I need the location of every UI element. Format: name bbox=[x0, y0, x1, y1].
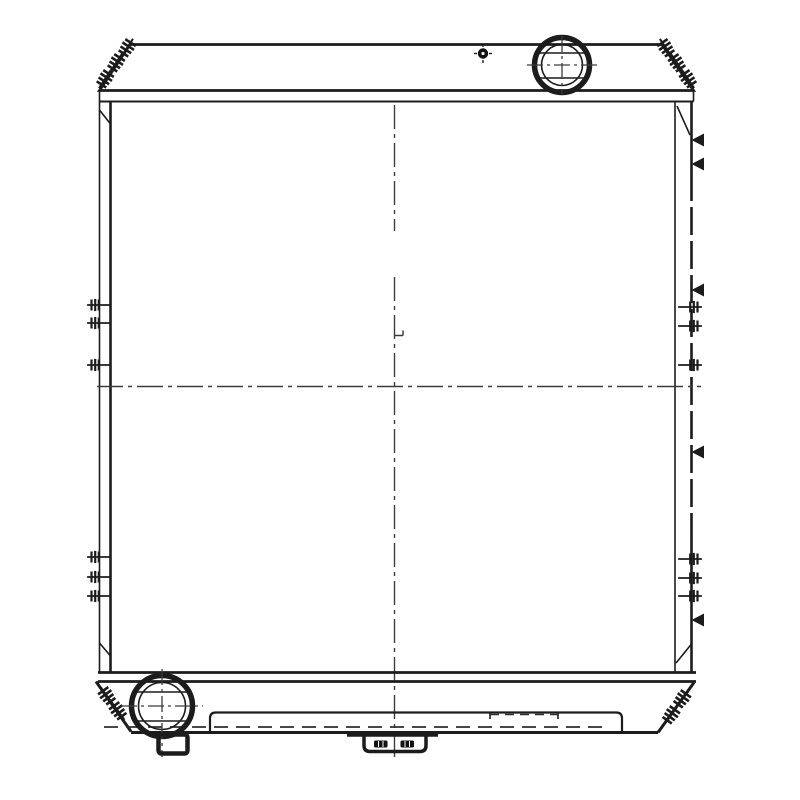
right-bolt bbox=[679, 554, 701, 564]
left-top-corner-brace bbox=[100, 110, 111, 124]
center-crosshair-lines bbox=[97, 105, 701, 757]
left-bolt bbox=[88, 318, 110, 328]
right-bolt bbox=[679, 321, 701, 331]
lower-access-plate bbox=[210, 713, 622, 733]
left-bolt bbox=[88, 360, 110, 370]
left-bolt bbox=[88, 572, 110, 582]
right-bolt bbox=[679, 591, 701, 601]
vent-port bbox=[474, 44, 492, 63]
weld-mark bbox=[692, 446, 705, 459]
center-mounting-bracket bbox=[347, 734, 438, 752]
weld-mark bbox=[692, 614, 705, 627]
weld-mark bbox=[692, 158, 705, 171]
right-bottom-corner-brace bbox=[676, 644, 692, 663]
weld-marks bbox=[692, 134, 705, 627]
right-bolt bbox=[679, 302, 701, 312]
weld-mark bbox=[692, 134, 705, 147]
radiator-technical-drawing bbox=[0, 0, 800, 800]
left-bottom-corner-brace bbox=[100, 643, 111, 656]
right-top-corner-brace bbox=[677, 106, 690, 135]
right-bolt bbox=[679, 360, 701, 370]
top-tank-outline bbox=[100, 45, 694, 91]
bottom-right-slant bbox=[658, 683, 694, 733]
left-bolt bbox=[88, 300, 110, 310]
top-tank bbox=[100, 45, 694, 102]
left-bolt bbox=[88, 591, 110, 601]
weld-mark bbox=[692, 284, 705, 297]
drawing-canvas bbox=[0, 0, 800, 800]
left-bolt bbox=[88, 552, 110, 562]
corner-stud-brackets bbox=[95, 37, 698, 727]
right-bolt bbox=[679, 573, 701, 583]
